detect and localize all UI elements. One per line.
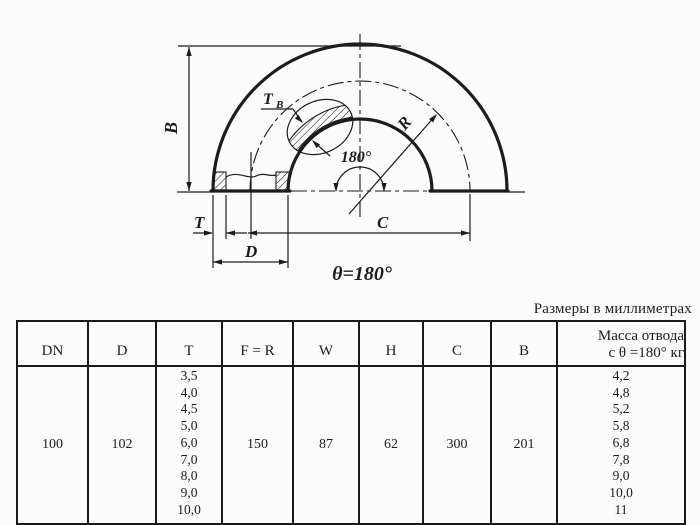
t-value: 7,0 — [181, 452, 198, 469]
c-arrow-left — [248, 230, 257, 235]
value-mass-list: 4,2 4,8 5,2 5,8 6,8 7,8 9,0 10,0 11 — [556, 367, 684, 523]
t-value: 5,0 — [181, 418, 198, 435]
header-f-r: F = R — [221, 322, 292, 367]
theta-180-label: θ=180° — [332, 263, 392, 285]
value-c: 300 — [422, 367, 490, 523]
header-mass-line2: с θ =180° кг — [609, 345, 685, 362]
mass-value: 4,8 — [613, 385, 630, 402]
angle-180-label: 180° — [341, 149, 372, 166]
value-w: 87 — [292, 367, 358, 523]
header-h: H — [358, 322, 422, 367]
header-mass: Масса отвода с θ =180° кг — [556, 322, 684, 367]
header-mass-line1: Масса отвода — [598, 328, 684, 345]
value-f-r: 150 — [221, 367, 292, 523]
tb-label: T — [263, 91, 274, 108]
mass-value: 10,0 — [609, 485, 633, 502]
mass-value: 9,0 — [613, 468, 630, 485]
header-d: D — [87, 322, 155, 367]
mass-value: 4,2 — [613, 368, 630, 385]
t-value: 6,0 — [181, 435, 198, 452]
t-value: 4,5 — [181, 401, 198, 418]
t-value: 9,0 — [181, 485, 198, 502]
mass-value: 11 — [615, 502, 628, 519]
header-t: T — [155, 322, 221, 367]
value-t-list: 3,5 4,0 4,5 5,0 6,0 7,0 8,0 9,0 10,0 — [155, 367, 221, 523]
mass-value: 5,2 — [613, 401, 630, 418]
t-value: 3,5 — [181, 368, 198, 385]
value-h: 62 — [358, 367, 422, 523]
t-arrow-right — [226, 230, 235, 235]
mass-value: 6,8 — [613, 435, 630, 452]
tb-label-subscript: B — [275, 99, 283, 111]
d-arrow-right — [279, 259, 288, 264]
d-arrow-left — [213, 259, 222, 264]
drawing-sheet: B T B R 180° T D C θ=180° Размеры в милл… — [0, 0, 700, 525]
b-arrow-top — [186, 47, 191, 56]
tb-arrow — [295, 115, 303, 123]
dimensions-table: DN D T F = R W H C B Масса отвода с θ =1… — [16, 320, 686, 525]
t-value: 8,0 — [181, 468, 198, 485]
b-dimension-label: B — [161, 122, 181, 135]
d-dimension-label: D — [244, 242, 257, 261]
value-d: 102 — [87, 367, 155, 523]
header-dn: DN — [18, 322, 87, 367]
r-radius-label: R — [393, 113, 415, 135]
arrowheads — [186, 47, 470, 265]
t-value: 4,0 — [181, 385, 198, 402]
header-b: B — [490, 322, 556, 367]
t-value: 10,0 — [177, 502, 201, 519]
t-dimension-label: T — [194, 213, 205, 232]
header-c: C — [422, 322, 490, 367]
t-arrow-left — [204, 230, 213, 235]
value-dn: 100 — [18, 367, 87, 523]
value-b: 201 — [490, 367, 556, 523]
c-arrow-right — [461, 230, 470, 235]
c-dimension-label: C — [377, 213, 389, 232]
mass-value: 7,8 — [613, 452, 630, 469]
units-note: Размеры в миллиметрах — [534, 301, 692, 318]
mass-value: 5,8 — [613, 418, 630, 435]
elbow-180-drawing: B T B R 180° T D C θ=180° — [0, 0, 700, 300]
b-arrow-bottom — [186, 182, 191, 191]
header-w: W — [292, 322, 358, 367]
